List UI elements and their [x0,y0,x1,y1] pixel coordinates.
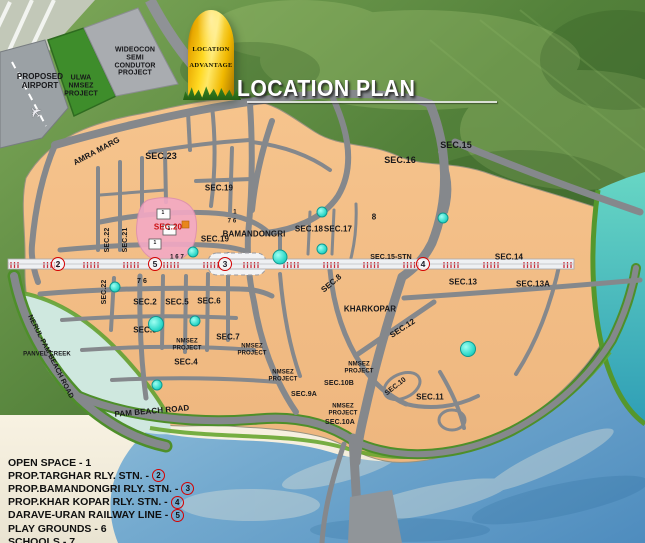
map-label: SEC.2 [133,299,157,308]
map-label: WIDEOCON SEMI CONDUTOR PROJECT [114,46,155,77]
map-label: NMSEZ PROJECT [237,343,266,356]
legend-item-number-badge: 5 [171,509,184,522]
map-label: SEC.23 [145,151,177,161]
legend-item-text: SCHOOLS - 7 [8,536,75,543]
map-label: ULWA NMSEZ PROJECT [64,74,98,97]
open-space-marker [182,221,189,228]
map-label: SEC.10A [325,419,355,427]
map-label: SEC.5 [165,299,189,308]
map-label: NMSEZ PROJECT [328,403,357,416]
map-label: SEC.6 [197,298,221,307]
map-label: NMSEZ PROJECT [172,338,201,351]
map-label: SEC.11 [416,394,444,403]
playground-marker [438,213,449,224]
map-label: SEC.14 [495,254,523,263]
milestone-line1: LOCATION [188,46,234,53]
map-label: 1 [233,210,236,217]
legend-item: PROP.TARGHAR RLY. STN. - 2 [8,469,194,482]
legend-item: DARAVE-URAN RAILWAY LINE - 5 [8,509,194,522]
playground-marker [110,282,121,293]
playground-marker [317,207,328,218]
legend-item-number-badge: 2 [152,469,165,482]
map-label: 7 6 [228,219,237,226]
map-label: SEC.7 [216,334,240,343]
legend-item-text: PROP.TARGHAR RLY. STN. - [8,470,149,482]
map-label: SEC.22 [104,228,112,253]
legend-item: PLAY GROUNDS - 6 [8,522,194,535]
map-label: BAMANDONGRI [223,231,286,240]
map-label: SEC.19 [205,185,233,194]
map-label: SEC.9A [291,391,317,399]
map-label: 8 [372,214,377,223]
milestone-sign: LOCATION ADVANTAGE [188,10,234,98]
page-title: LOCATION PLAN [237,75,415,102]
map-label: SEC.4 [174,359,198,368]
playground-marker [317,244,328,255]
legend-item: PROP.KHAR KOPAR RLY. STN. - 4 [8,496,194,509]
map-label: SEC.18 [295,226,323,235]
legend-item-text: DARAVE-URAN RAILWAY LINE - [8,509,168,521]
map-label: SEC.21 [122,228,130,253]
railway-station-marker: 5 [148,257,162,271]
map-label: 1 6 7 [170,255,184,262]
map-label: 1 [168,227,171,233]
map-label: SEC.17 [324,226,352,235]
legend-item-text: PROP.KHAR KOPAR RLY. STN. - [8,496,168,508]
legend-item-number-badge: 4 [171,496,184,509]
map-label: SEC.13A [516,281,550,290]
playground-marker [190,316,201,327]
location-plan-map: LOCATION ADVANTAGE ✈ LOCATION PLAN PROPO… [0,0,645,543]
playground-marker [148,316,164,332]
map-label: KHARKOPAR [344,306,396,315]
map-label: SEC.15 [440,140,472,150]
playground-marker [460,341,476,357]
legend-item-text: PROP.BAMANDONGRI RLY. STN. - [8,483,178,495]
map-label: 7 6 [137,278,147,286]
map-label: SEC.10B [324,380,354,388]
legend-item-text: OPEN SPACE - 1 [8,457,91,469]
railway-station-marker: 4 [416,257,430,271]
map-label: SEC.22 [101,280,109,305]
railway-station-marker: 3 [218,257,232,271]
map-label: 1 [154,241,157,247]
milestone-line2: ADVANTAGE [188,62,234,69]
map-label: SEC.15-STN [370,254,411,262]
legend: OPEN SPACE - 1 PROP.TARGHAR RLY. STN. - … [8,456,194,543]
map-label: PROPOSED AIRPORT [17,73,63,91]
legend-item: OPEN SPACE - 1 [8,456,194,469]
map-label: NMSEZ PROJECT [344,361,373,374]
playground-marker [273,250,288,265]
legend-item-text: PLAY GROUNDS - 6 [8,523,107,535]
legend-item-number-badge: 3 [181,482,194,495]
legend-item: PROP.BAMANDONGRI RLY. STN. - 3 [8,482,194,495]
railway-station-marker: 2 [51,257,65,271]
playground-marker [188,247,199,258]
map-label: SEC.16 [384,155,416,165]
title-underline [247,101,497,103]
map-label: SEC.13 [449,279,477,288]
playground-marker [152,380,163,391]
map-label: 1 [162,211,165,217]
legend-item: SCHOOLS - 7 [8,535,194,543]
map-label: NMSEZ PROJECT [268,369,297,382]
